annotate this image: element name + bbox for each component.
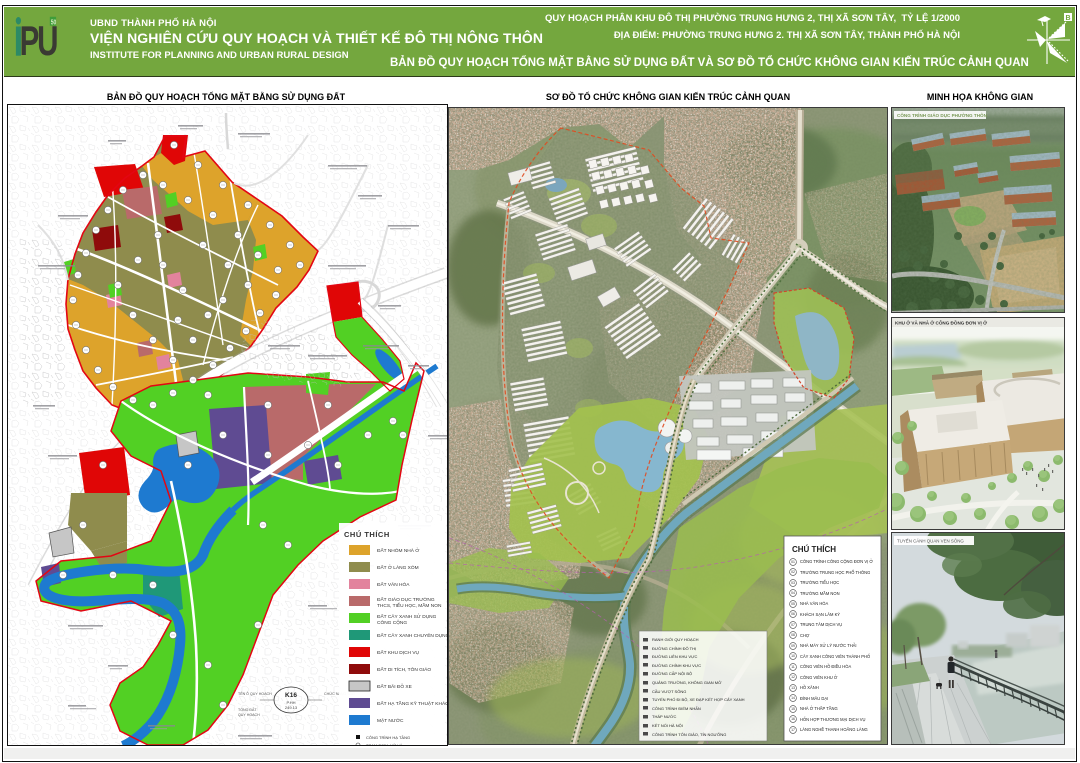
svg-text:B: B (1066, 15, 1071, 22)
svg-text:TUYẾN PHỐ ĐI BỘ, XE ĐẠP KẾT HỢ: TUYẾN PHỐ ĐI BỘ, XE ĐẠP KẾT HỢP CÂY XANH (652, 697, 745, 702)
svg-text:CHỢ: CHỢ (800, 633, 810, 638)
svg-text:249.13: 249.13 (285, 705, 298, 710)
svg-text:ĐƯỜNG LIÊN KHU VỰC: ĐƯỜNG LIÊN KHU VỰC (652, 654, 697, 659)
svg-text:05: 05 (791, 602, 795, 606)
svg-text:06: 06 (791, 612, 795, 616)
svg-text:ĐẤT Ở LÀNG XÓM: ĐẤT Ở LÀNG XÓM (377, 564, 419, 571)
svg-text:ĐẤT VĂN HÓA: ĐẤT VĂN HÓA (377, 581, 410, 588)
svg-text:50: 50 (51, 19, 57, 27)
svg-text:TRƯỜNG TRUNG HỌC PHỔ THÔNG: TRƯỜNG TRUNG HỌC PHỔ THÔNG (800, 570, 870, 575)
svg-text:CÔNG TRÌNH HẠ TẦNG: CÔNG TRÌNH HẠ TẦNG (366, 735, 410, 740)
svg-text:ĐÌNH MÂU DẠI: ĐÌNH MÂU DẠI (800, 696, 828, 701)
svg-text:04: 04 (791, 591, 795, 595)
svg-text:CÔNG VIÊN KHU Ở: CÔNG VIÊN KHU Ở (800, 675, 838, 680)
svg-text:CÔNG TRÌNH CÔNG CỘNG ĐƠN VỊ Ở: CÔNG TRÌNH CÔNG CỘNG ĐƠN VỊ Ở (800, 559, 873, 564)
svg-text:ĐƯỜNG CẤP NỘI BỘ: ĐƯỜNG CẤP NỘI BỘ (652, 671, 692, 676)
svg-text:ĐẤT BÃI ĐỖ XE: ĐẤT BÃI ĐỖ XE (377, 683, 412, 690)
svg-text:CÔNG TRÌNH ĐIỂM NHẤN: CÔNG TRÌNH ĐIỂM NHẤN (652, 706, 701, 711)
svg-text:16: 16 (791, 717, 795, 721)
svg-text:17: 17 (791, 728, 795, 732)
svg-text:15: 15 (791, 707, 795, 711)
svg-text:THCS, TIỂU HỌC, MẦM NON: THCS, TIỂU HỌC, MẦM NON (377, 602, 442, 609)
svg-text:02: 02 (791, 570, 795, 574)
svg-text:CÔNG TRÌNH TÔN GIÁO, TÍN NGƯỠN: CÔNG TRÌNH TÔN GIÁO, TÍN NGƯỠNG (652, 732, 726, 737)
svg-text:ĐẤT NHÓM NHÀ Ở: ĐẤT NHÓM NHÀ Ở (377, 547, 419, 554)
svg-text:13: 13 (791, 686, 795, 690)
svg-text:LÀNG NGHỀ THANH HOẮNG LÀNG: LÀNG NGHỀ THANH HOẮNG LÀNG (800, 727, 868, 732)
svg-text:THÁP NƯỚC: THÁP NƯỚC (652, 714, 676, 719)
svg-text:KẾT NỐI HÀ NỘI: KẾT NỐI HÀ NỘI (652, 723, 683, 728)
svg-text:01: 01 (791, 560, 795, 564)
svg-text:CHÚ THÍCH: CHÚ THÍCH (792, 545, 836, 554)
svg-text:QUẢNG TRƯỜNG, KHÔNG GIAN MỞ: QUẢNG TRƯỜNG, KHÔNG GIAN MỞ (652, 680, 722, 685)
svg-text:RANH GIỚI QUY HOẠCH: RANH GIỚI QUY HOẠCH (652, 637, 699, 642)
svg-text:CÔNG CỘNG: CÔNG CỘNG (377, 619, 407, 626)
svg-text:14: 14 (791, 696, 795, 700)
svg-text:MẶT NƯỚC: MẶT NƯỚC (377, 717, 404, 724)
svg-text:NHÀ MÁY XỬ LÝ NƯỚC THẢI: NHÀ MÁY XỬ LÝ NƯỚC THẢI (800, 643, 857, 648)
svg-text:CÂY XANH CÔNG VIÊN THÀNH PHỐ: CÂY XANH CÔNG VIÊN THÀNH PHỐ (800, 654, 870, 659)
svg-text:03: 03 (791, 581, 795, 585)
svg-text:NHÀ VĂN HÓA: NHÀ VĂN HÓA (800, 601, 828, 606)
svg-text:QUY HOẠCH: QUY HOẠCH (238, 713, 260, 717)
svg-text:09: 09 (791, 644, 795, 648)
svg-text:HỒ XÂNH: HỒ XÂNH (800, 685, 819, 690)
svg-text:TUYẾN CÁNH QUAN VEN SÔNG: TUYẾN CÁNH QUAN VEN SÔNG (897, 539, 964, 544)
svg-text:12: 12 (791, 675, 795, 679)
svg-text:11: 11 (791, 665, 795, 669)
svg-text:CÔNG VIÊN HỒ ĐIỀU HÒA: CÔNG VIÊN HỒ ĐIỀU HÒA (800, 664, 851, 669)
svg-text:CHÚ THÍCH: CHÚ THÍCH (344, 530, 390, 539)
svg-text:TÊN Ô QUY HOẠCH: TÊN Ô QUY HOẠCH (238, 691, 272, 696)
svg-text:ĐƯỜNG CHÍNH KHU VỰC: ĐƯỜNG CHÍNH KHU VỰC (652, 663, 701, 668)
svg-text:TRƯỜNG MẦM NON: TRƯỜNG MẦM NON (800, 591, 840, 596)
svg-text:ĐẤT KHU DỊCH VỤ: ĐẤT KHU DỊCH VỤ (377, 649, 420, 656)
svg-text:NHÀ Ở THẤP TẦNG: NHÀ Ở THẤP TẦNG (800, 706, 838, 711)
svg-text:07: 07 (791, 623, 795, 627)
svg-text:TRUNG TÂM DỊCH VỤ: TRUNG TÂM DỊCH VỤ (800, 622, 842, 627)
svg-text:ĐẤT CÂY XANH SỬ DỤNG: ĐẤT CÂY XANH SỬ DỤNG (377, 613, 437, 620)
svg-text:10: 10 (791, 654, 795, 658)
svg-text:K16: K16 (285, 692, 297, 699)
svg-text:KHÁCH SẠN LÂM KÝ: KHÁCH SẠN LÂM KÝ (800, 612, 840, 617)
svg-text:CẦU VƯỢT SÔNG: CẦU VƯỢT SÔNG (652, 689, 686, 694)
svg-text:TỔNG ĐẤT: TỔNG ĐẤT (238, 707, 257, 712)
svg-text:TRƯỜNG TIỂU HỌC: TRƯỜNG TIỂU HỌC (800, 580, 839, 585)
svg-text:CÔNG TRÌNH GIÁO DỤC PHƯỜNG THÔ: CÔNG TRÌNH GIÁO DỤC PHƯỜNG THÔN (897, 111, 988, 118)
svg-text:HỖN HỢP THƯƠNG MẠI DỊCH VỤ: HỖN HỢP THƯƠNG MẠI DỊCH VỤ (800, 717, 865, 722)
svg-text:ĐẤT GIÁO DỤC TRƯỜNG: ĐẤT GIÁO DỤC TRƯỜNG (377, 596, 435, 603)
svg-text:TRẠM BƠM, XỬ LÝ: TRẠM BƠM, XỬ LÝ (366, 743, 403, 746)
svg-text:ĐẤT DI TÍCH, TÔN GIÁO: ĐẤT DI TÍCH, TÔN GIÁO (377, 666, 431, 673)
svg-text:08: 08 (791, 633, 795, 637)
svg-text:KHU Ở VÀ NHÀ Ở CÔNG ĐỒNG ĐƠN V: KHU Ở VÀ NHÀ Ở CÔNG ĐỒNG ĐƠN VỊ Ở (895, 319, 987, 326)
svg-text:ĐƯỜNG CHÍNH ĐÔ THỊ: ĐƯỜNG CHÍNH ĐÔ THỊ (652, 646, 696, 651)
svg-text:ĐẤT HẠ TẦNG KỸ THUẬT KHÁC: ĐẤT HẠ TẦNG KỸ THUẬT KHÁC (377, 700, 447, 707)
